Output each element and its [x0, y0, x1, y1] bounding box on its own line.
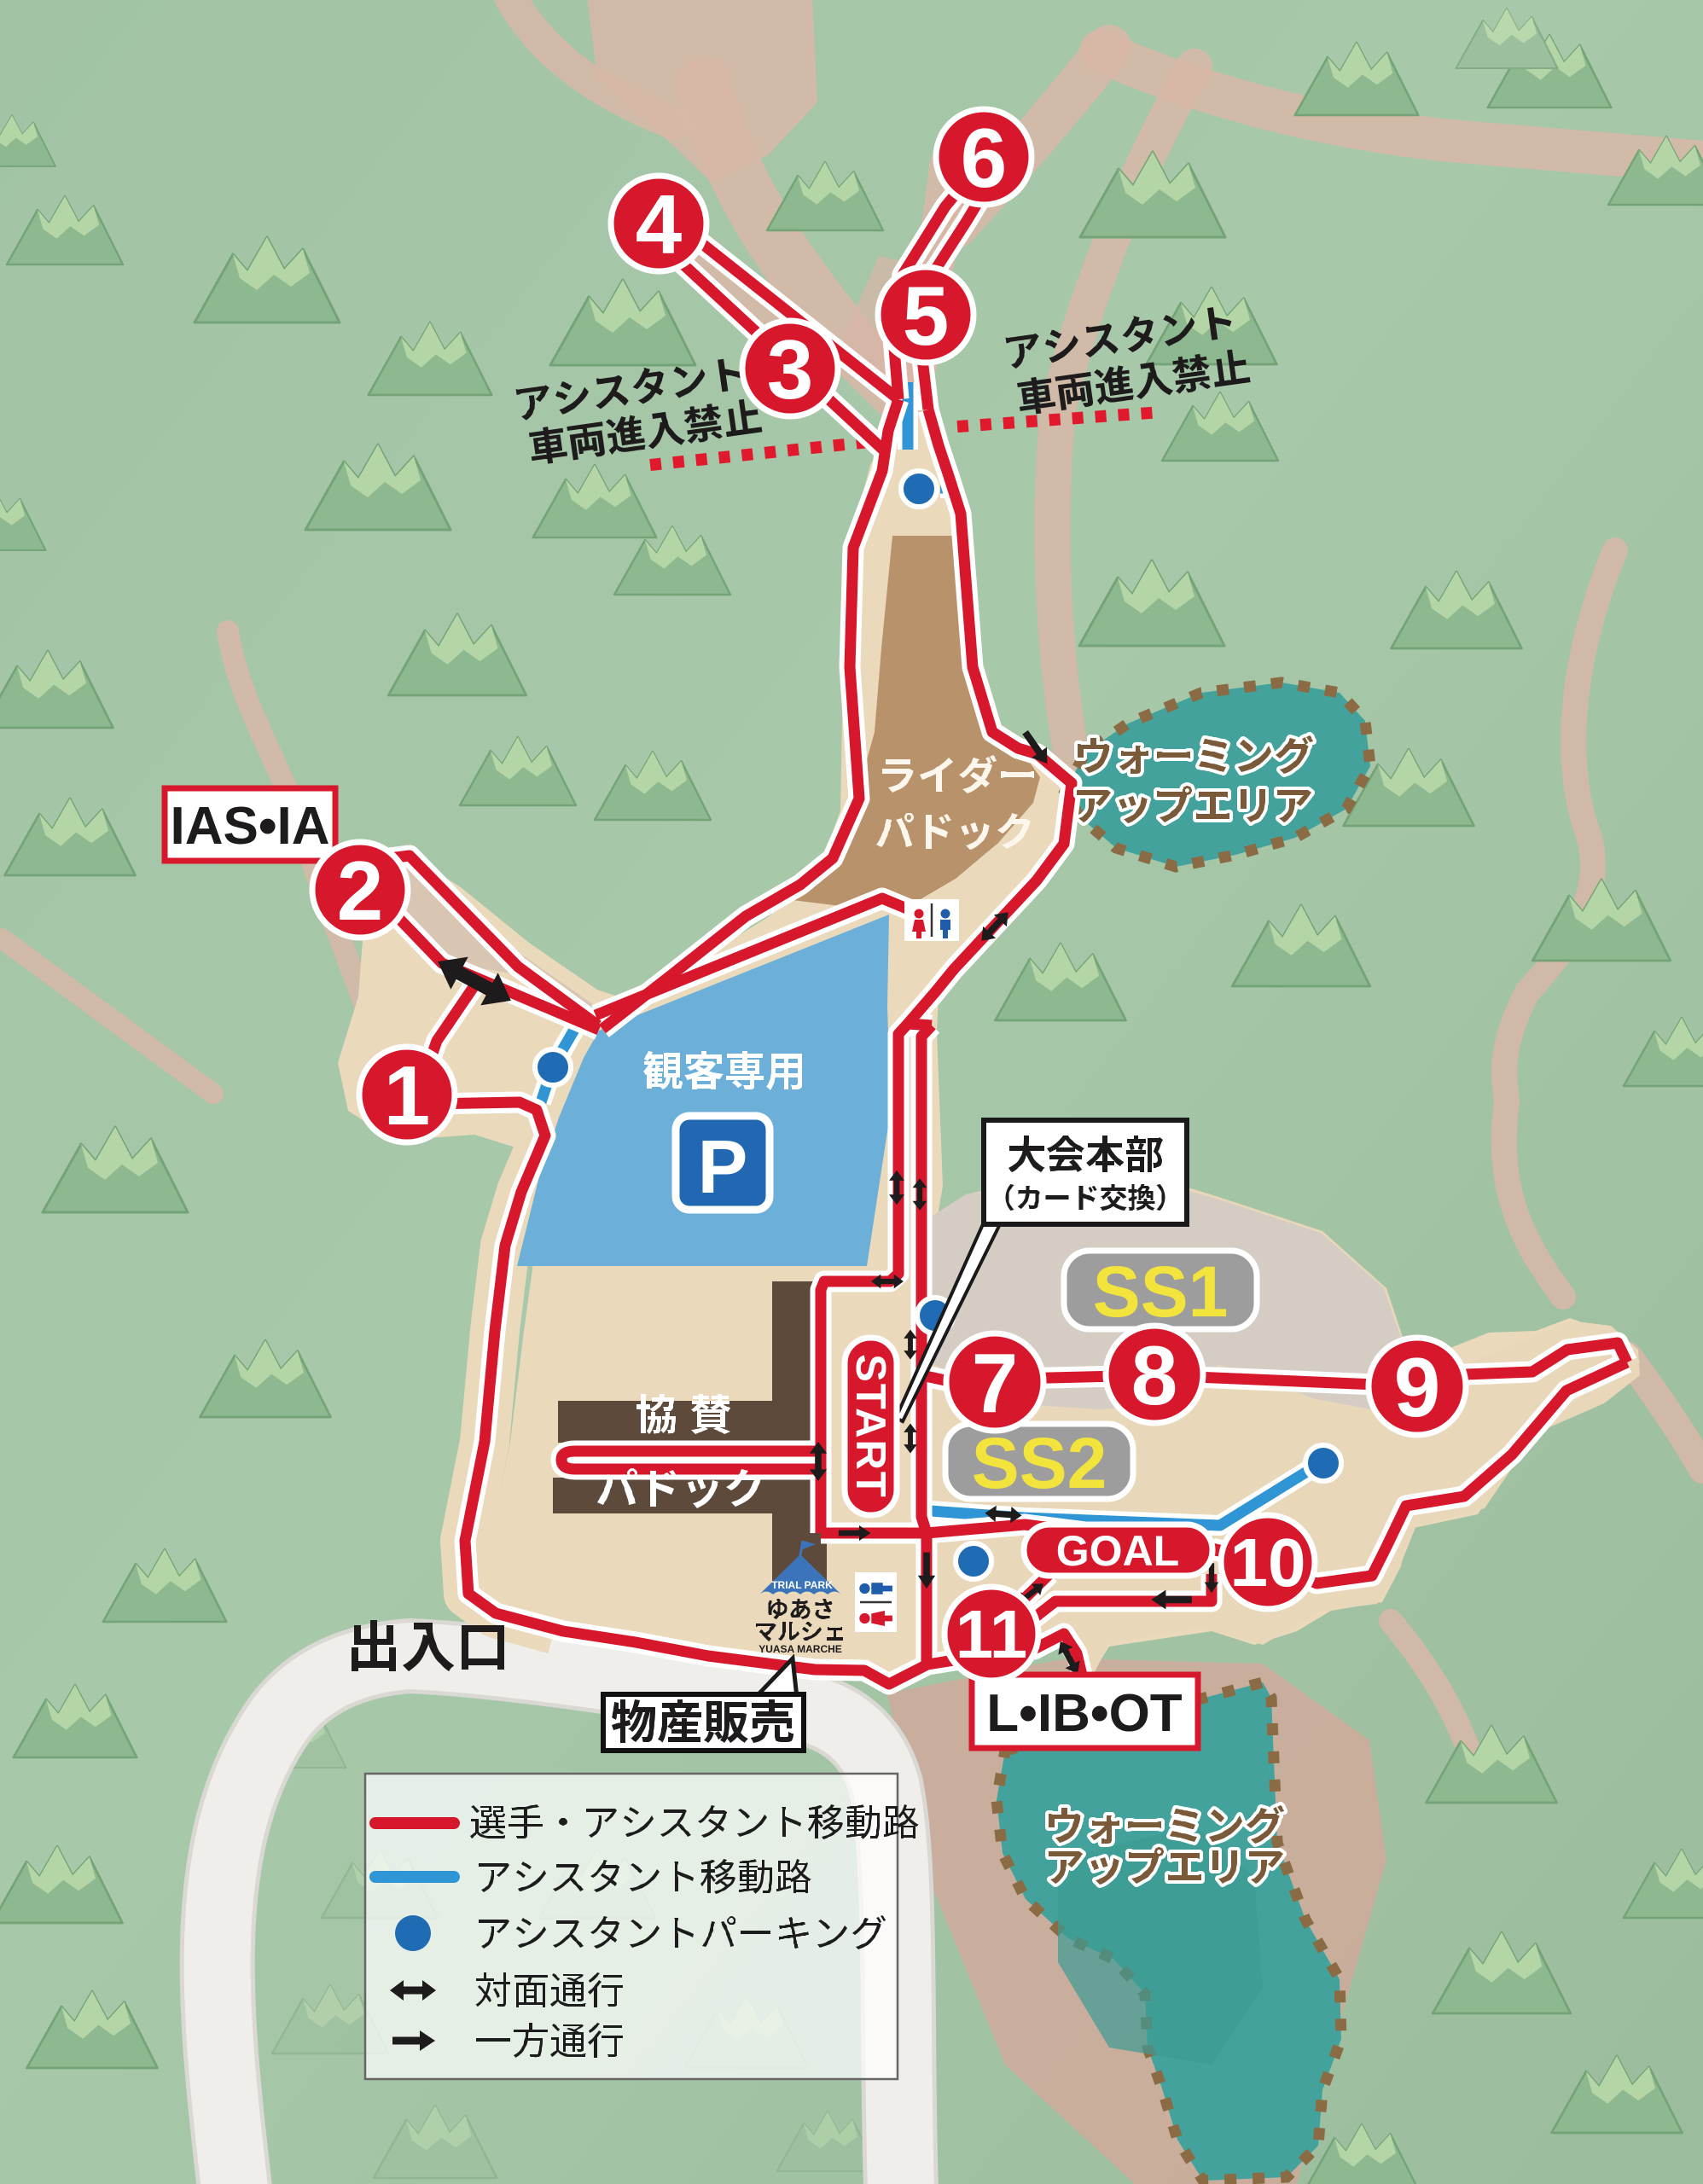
svg-text:4: 4	[636, 177, 683, 271]
svg-text:IAS•IA: IAS•IA	[170, 797, 329, 856]
svg-text:9: 9	[1394, 1340, 1441, 1434]
svg-text:TRIAL PARK: TRIAL PARK	[771, 1579, 833, 1591]
svg-text:11: 11	[956, 1596, 1028, 1672]
svg-text:SS2: SS2	[972, 1423, 1107, 1503]
svg-text:P: P	[698, 1124, 748, 1209]
svg-text:6: 6	[961, 111, 1008, 205]
svg-text:5: 5	[903, 269, 950, 363]
svg-text:1: 1	[384, 1048, 431, 1142]
svg-text:SS1: SS1	[1093, 1252, 1229, 1332]
svg-text:7: 7	[972, 1336, 1019, 1430]
svg-text:8: 8	[1131, 1328, 1178, 1422]
svg-text:3: 3	[767, 322, 814, 416]
svg-text:10: 10	[1230, 1525, 1306, 1600]
svg-text:2: 2	[337, 844, 384, 938]
svg-text:GOAL: GOAL	[1056, 1527, 1179, 1575]
svg-text:L•IB•OT: L•IB•OT	[986, 1684, 1183, 1743]
svg-text:YUASA MARCHE: YUASA MARCHE	[759, 1643, 842, 1655]
svg-text:START: START	[847, 1354, 893, 1499]
